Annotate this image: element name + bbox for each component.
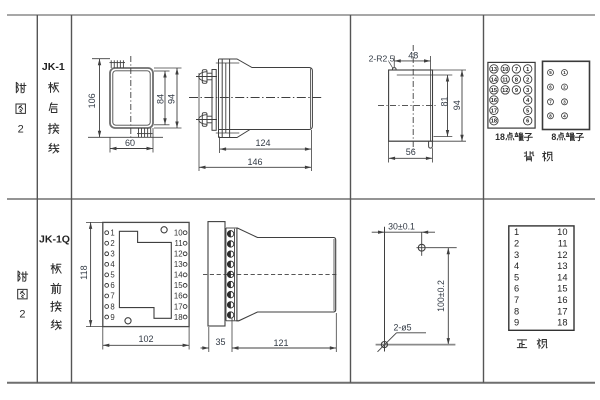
svg-text:18: 18 [557, 318, 567, 328]
svg-text:1: 1 [514, 227, 519, 237]
svg-text:15: 15 [491, 88, 497, 94]
svg-text:94: 94 [166, 94, 176, 104]
svg-text:12: 12 [174, 250, 183, 259]
svg-text:13: 13 [174, 260, 183, 269]
svg-text:5: 5 [514, 272, 519, 282]
svg-text:9: 9 [110, 313, 114, 322]
svg-text:JK-1: JK-1 [42, 61, 65, 73]
svg-text:8: 8 [110, 302, 114, 311]
svg-text:2: 2 [110, 239, 114, 248]
svg-text:10: 10 [502, 67, 508, 73]
svg-text:2: 2 [514, 239, 519, 249]
svg-text:1: 1 [526, 67, 529, 73]
svg-text:12: 12 [502, 88, 508, 94]
svg-text:3: 3 [514, 250, 519, 260]
svg-text:102: 102 [138, 334, 153, 344]
svg-text:8: 8 [551, 132, 556, 142]
svg-text:4: 4 [514, 261, 519, 271]
svg-text:146: 146 [247, 157, 262, 167]
svg-text:7: 7 [110, 292, 114, 301]
svg-text:18: 18 [174, 313, 183, 322]
svg-text:18: 18 [491, 119, 497, 125]
svg-text:6: 6 [514, 284, 519, 294]
svg-text:7: 7 [515, 67, 518, 73]
svg-text:5: 5 [110, 271, 115, 280]
svg-text:60: 60 [125, 138, 135, 148]
svg-text:81: 81 [439, 96, 449, 106]
svg-text:7: 7 [514, 295, 519, 305]
svg-text:8: 8 [515, 77, 518, 83]
svg-text:14: 14 [491, 77, 498, 83]
svg-text:3: 3 [110, 250, 114, 259]
svg-text:17: 17 [557, 306, 567, 316]
svg-text:12: 12 [557, 250, 567, 260]
svg-text:11: 11 [558, 239, 568, 249]
svg-text:JK-1Q: JK-1Q [39, 233, 70, 245]
svg-text:10: 10 [174, 229, 183, 238]
svg-text:5: 5 [526, 108, 529, 114]
svg-text:2: 2 [18, 123, 24, 135]
svg-text:56: 56 [406, 147, 416, 157]
svg-text:2: 2 [526, 77, 529, 83]
svg-text:13: 13 [491, 67, 497, 73]
svg-text:121: 121 [273, 338, 288, 348]
svg-text:15: 15 [174, 281, 183, 290]
svg-text:8: 8 [514, 306, 519, 316]
svg-text:11: 11 [175, 239, 183, 248]
svg-text:106: 106 [87, 93, 97, 108]
svg-text:6: 6 [110, 281, 114, 290]
svg-text:17: 17 [491, 108, 497, 114]
svg-text:124: 124 [255, 138, 270, 148]
svg-text:35: 35 [215, 337, 225, 347]
svg-text:15: 15 [557, 284, 567, 294]
svg-text:16: 16 [557, 295, 567, 305]
svg-text:14: 14 [174, 271, 183, 280]
svg-text:118: 118 [79, 265, 89, 279]
svg-text:2-ø5: 2-ø5 [393, 323, 411, 333]
svg-text:1: 1 [110, 229, 114, 238]
svg-text:14: 14 [557, 272, 567, 282]
svg-text:84: 84 [156, 94, 166, 104]
svg-text:16: 16 [174, 292, 183, 301]
svg-text:48: 48 [408, 50, 418, 60]
svg-text:11: 11 [502, 77, 508, 83]
svg-text:30±0.1: 30±0.1 [388, 221, 415, 231]
svg-text:94: 94 [452, 100, 462, 110]
svg-text:9: 9 [515, 88, 518, 94]
svg-text:2: 2 [19, 308, 25, 320]
svg-text:9: 9 [514, 318, 519, 328]
svg-text:2-R2.5: 2-R2.5 [369, 53, 395, 63]
svg-text:6: 6 [526, 119, 529, 125]
svg-text:4: 4 [110, 260, 115, 269]
svg-text:100±0.2: 100±0.2 [436, 280, 446, 312]
svg-text:13: 13 [557, 261, 567, 271]
svg-text:3: 3 [526, 88, 529, 94]
svg-text:16: 16 [491, 98, 497, 104]
svg-text:18: 18 [495, 132, 505, 142]
svg-text:17: 17 [174, 302, 183, 311]
svg-text:10: 10 [557, 227, 567, 237]
